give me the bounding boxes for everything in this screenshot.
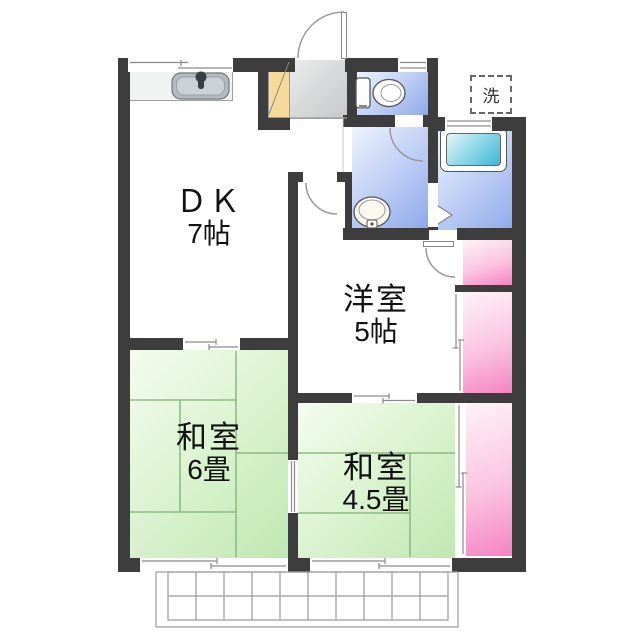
kitchen-window [128, 58, 233, 72]
bathtub-water [446, 133, 501, 166]
wall-segment [118, 58, 130, 572]
tatami6-room-label: 和室 6畳 [149, 422, 269, 485]
wall-segment [343, 115, 395, 127]
western-room-door-opening [429, 230, 457, 240]
washroom [352, 127, 428, 228]
floor-plan: 洗 [0, 0, 640, 640]
wall-segment [457, 228, 512, 240]
closet-small [463, 240, 512, 285]
wall-segment [118, 58, 128, 72]
bathroom-window [445, 117, 492, 131]
sliding-door-tatami45-closet [455, 403, 466, 556]
tatami6-room-name: 和室 [176, 422, 242, 455]
wall-segment [455, 285, 512, 292]
western-room-label: 洋室 5帖 [316, 284, 436, 347]
wall-segment [288, 172, 303, 182]
wall-segment [343, 228, 430, 240]
toilet-room [357, 72, 428, 115]
wall-segment [288, 513, 298, 558]
dk-room-size: 7帖 [187, 219, 231, 249]
western-room-name: 洋室 [343, 284, 409, 317]
wall-segment [417, 393, 526, 403]
wall-segment [118, 338, 183, 350]
wall-segment [288, 558, 310, 572]
wall-segment [347, 58, 357, 117]
western-room-size: 5帖 [354, 317, 398, 347]
entrance-door-leaf [341, 12, 347, 59]
dk-room-name: ＤＫ [176, 186, 242, 219]
wall-segment [428, 58, 438, 183]
kitchen-counter [128, 70, 233, 101]
wall-segment [258, 58, 268, 120]
western-room-door-arc [426, 248, 455, 277]
dk-western-door-arc [306, 183, 337, 214]
wall-segment [258, 118, 290, 130]
dk-room-label: ＤＫ 7帖 [149, 186, 269, 249]
wall-segment [452, 558, 526, 572]
sliding-door-western-tatami45 [352, 393, 417, 403]
balcony [156, 572, 458, 627]
tatami45-room-name: 和室 [343, 452, 409, 485]
wall-segment [288, 393, 352, 403]
laundry-machine-space: 洗 [470, 75, 512, 114]
sliding-door-dk-tatami6 [183, 338, 240, 350]
wall-segment [118, 558, 140, 572]
toilet-window [398, 58, 427, 72]
tatami45-room-label: 和室 4.5畳 [306, 452, 446, 515]
entrance-genkan [290, 60, 347, 119]
sliding-door-western-closet [452, 292, 463, 393]
western-room-door-leaf [423, 241, 454, 247]
closet-western-room [463, 292, 512, 393]
wall-segment [240, 338, 288, 350]
tatami6-room-size: 6畳 [187, 455, 231, 485]
laundry-label: 洗 [483, 82, 500, 107]
entrance-door-arc [298, 12, 344, 58]
tatami45-window [310, 558, 452, 572]
wall-segment [512, 117, 526, 572]
wall-segment [438, 117, 445, 131]
wall-segment [288, 182, 298, 460]
sliding-door-tatami6-tatami45 [288, 460, 298, 513]
closet-tatami-room [466, 403, 512, 556]
tatami45-room-size: 4.5畳 [343, 485, 410, 515]
wall-segment [345, 172, 352, 228]
tatami6-window [140, 558, 288, 572]
